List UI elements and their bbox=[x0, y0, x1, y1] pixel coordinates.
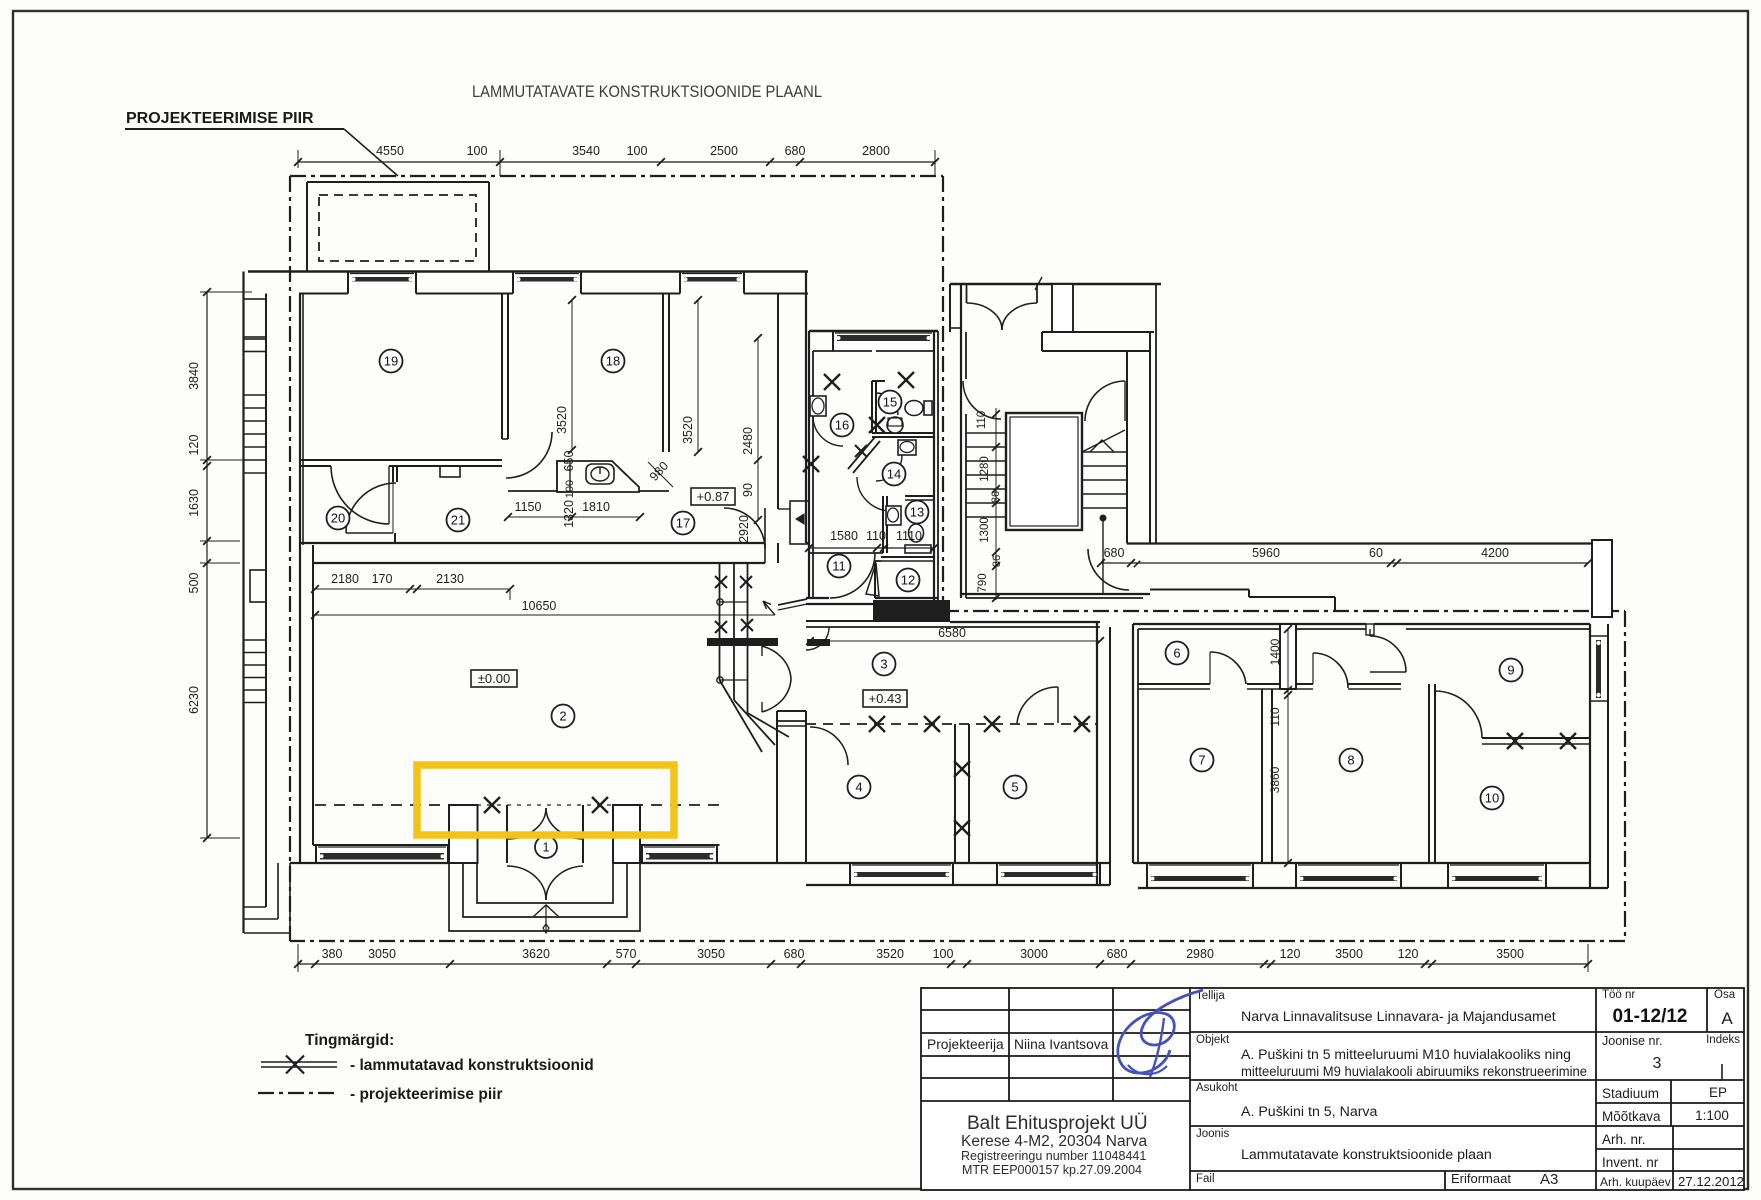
svg-text:- lammutatavad konstruktsiooni: - lammutatavad konstruktsioonid bbox=[350, 1057, 594, 1074]
svg-text:170: 170 bbox=[372, 572, 393, 586]
svg-text:Lammutatavate konstruktsioonid: Lammutatavate konstruktsioonide plaan bbox=[1241, 1147, 1492, 1163]
svg-text:380: 380 bbox=[322, 947, 343, 961]
svg-text:18: 18 bbox=[606, 354, 620, 369]
svg-text:+0.43: +0.43 bbox=[869, 691, 902, 706]
svg-text:10: 10 bbox=[1485, 791, 1499, 806]
svg-text:12: 12 bbox=[901, 573, 915, 588]
svg-text:1:100: 1:100 bbox=[1695, 1108, 1729, 1123]
svg-text:Indeks: Indeks bbox=[1706, 1034, 1740, 1046]
svg-text:9: 9 bbox=[1507, 663, 1514, 678]
svg-text:Tingmärgid:: Tingmärgid: bbox=[305, 1032, 394, 1049]
svg-text:2180: 2180 bbox=[331, 572, 359, 586]
svg-text:4200: 4200 bbox=[1481, 546, 1509, 560]
svg-text:2980: 2980 bbox=[1186, 947, 1214, 961]
svg-text:Mõõtkava: Mõõtkava bbox=[1602, 1109, 1661, 1124]
svg-text:60: 60 bbox=[1369, 546, 1383, 560]
svg-text:Registreeringu number 11048441: Registreeringu number 11048441 bbox=[961, 1149, 1146, 1163]
svg-text:3: 3 bbox=[880, 657, 887, 672]
svg-text:3500: 3500 bbox=[1496, 947, 1524, 961]
svg-text:650: 650 bbox=[562, 451, 576, 472]
svg-text:LAMMUTATAVATE KONSTRUKTSIOONID: LAMMUTATAVATE KONSTRUKTSIOONIDE PLAANL bbox=[472, 83, 822, 101]
svg-text:3860: 3860 bbox=[1268, 766, 1282, 793]
svg-text:90: 90 bbox=[741, 483, 755, 497]
svg-text:3: 3 bbox=[1653, 1055, 1662, 1072]
svg-text:3050: 3050 bbox=[368, 947, 396, 961]
svg-text:Osa: Osa bbox=[1714, 989, 1736, 1001]
svg-text:3500: 3500 bbox=[1335, 947, 1363, 961]
svg-text:2480: 2480 bbox=[741, 427, 755, 455]
svg-text:790: 790 bbox=[977, 573, 989, 592]
svg-text:MTR EEP000157 kp.27.09.2004: MTR EEP000157 kp.27.09.2004 bbox=[962, 1163, 1142, 1177]
svg-text:3000: 3000 bbox=[1020, 947, 1048, 961]
svg-text:1280: 1280 bbox=[979, 456, 991, 482]
svg-text:3520: 3520 bbox=[876, 947, 904, 961]
svg-text:2800: 2800 bbox=[862, 144, 890, 158]
svg-text:86: 86 bbox=[990, 491, 1002, 503]
svg-text:Arh. kuupäev: Arh. kuupäev bbox=[1600, 1175, 1671, 1189]
svg-text:A3: A3 bbox=[1540, 1171, 1558, 1188]
svg-text:21: 21 bbox=[451, 513, 465, 528]
svg-text:1150: 1150 bbox=[515, 500, 542, 514]
svg-text:7: 7 bbox=[1198, 753, 1205, 768]
svg-text:4: 4 bbox=[855, 780, 862, 795]
svg-text:110: 110 bbox=[1268, 707, 1282, 726]
svg-text:100: 100 bbox=[467, 144, 488, 158]
svg-text:+0.87: +0.87 bbox=[697, 489, 730, 504]
svg-text:100: 100 bbox=[627, 144, 648, 158]
svg-text:Objekt: Objekt bbox=[1196, 1034, 1230, 1046]
svg-text:2130: 2130 bbox=[436, 572, 464, 586]
svg-text:680: 680 bbox=[1107, 947, 1128, 961]
svg-text:1630: 1630 bbox=[187, 489, 201, 517]
svg-text:17: 17 bbox=[676, 516, 690, 531]
svg-text:4550: 4550 bbox=[376, 144, 404, 158]
svg-text:20: 20 bbox=[331, 511, 345, 526]
svg-text:6230: 6230 bbox=[187, 686, 201, 714]
svg-text:86: 86 bbox=[991, 555, 1003, 567]
svg-text:1810: 1810 bbox=[582, 500, 610, 514]
svg-text:A. Puškini tn 5 mitteeluruumi: A. Puškini tn 5 mitteeluruumi M10 huvial… bbox=[1241, 1046, 1571, 1062]
svg-text:13: 13 bbox=[910, 505, 924, 520]
svg-text:120: 120 bbox=[1398, 947, 1419, 961]
svg-text:3540: 3540 bbox=[572, 144, 600, 158]
svg-text:500: 500 bbox=[187, 573, 201, 594]
svg-text:3620: 3620 bbox=[522, 947, 550, 961]
svg-text:1400: 1400 bbox=[1268, 638, 1282, 665]
svg-text:110: 110 bbox=[976, 411, 988, 429]
svg-text:1320: 1320 bbox=[562, 500, 576, 528]
svg-text:11: 11 bbox=[832, 559, 846, 574]
svg-text:1300: 1300 bbox=[979, 517, 991, 543]
svg-text:01-12/12: 01-12/12 bbox=[1612, 1006, 1687, 1027]
svg-text:1580: 1580 bbox=[830, 529, 858, 543]
svg-text:Fail: Fail bbox=[1196, 1173, 1215, 1185]
svg-text:2920: 2920 bbox=[737, 515, 751, 543]
svg-text:27.12.2012: 27.12.2012 bbox=[1678, 1174, 1744, 1189]
svg-text:A. Puškini tn 5, Narva: A. Puškini tn 5, Narva bbox=[1241, 1104, 1378, 1120]
svg-text:680: 680 bbox=[784, 947, 805, 961]
svg-text:A: A bbox=[1721, 1009, 1733, 1028]
svg-text:Asukoht: Asukoht bbox=[1196, 1082, 1238, 1094]
svg-text:PROJEKTEERIMISE PIIR: PROJEKTEERIMISE PIIR bbox=[126, 110, 314, 127]
svg-text:6580: 6580 bbox=[938, 626, 966, 640]
svg-text:Eriformaat: Eriformaat bbox=[1451, 1171, 1511, 1186]
svg-text:EP: EP bbox=[1709, 1085, 1727, 1100]
svg-text:19: 19 bbox=[384, 354, 398, 369]
svg-text:14: 14 bbox=[887, 467, 901, 482]
svg-text:mitteeluruumi M9 huvialakooli: mitteeluruumi M9 huvialakooli abiruumiks… bbox=[1241, 1063, 1587, 1079]
svg-text:2: 2 bbox=[559, 709, 566, 724]
svg-text:Arh. nr.: Arh. nr. bbox=[1602, 1132, 1646, 1147]
svg-text:6: 6 bbox=[1173, 646, 1180, 661]
svg-text:±0.00: ±0.00 bbox=[478, 671, 510, 686]
svg-text:3050: 3050 bbox=[697, 947, 725, 961]
svg-text:Balt Ehitusprojekt UÜ: Balt Ehitusprojekt UÜ bbox=[967, 1113, 1148, 1134]
svg-text:Joonise nr.: Joonise nr. bbox=[1602, 1034, 1662, 1048]
svg-text:Niina Ivantsova: Niina Ivantsova bbox=[1014, 1037, 1109, 1052]
svg-text:Stadiuum: Stadiuum bbox=[1602, 1086, 1659, 1101]
svg-text:3840: 3840 bbox=[187, 362, 201, 390]
svg-text:Töö nr: Töö nr bbox=[1602, 989, 1635, 1001]
svg-text:5: 5 bbox=[1011, 780, 1018, 795]
svg-text:100: 100 bbox=[933, 947, 954, 961]
svg-text:2500: 2500 bbox=[710, 144, 738, 158]
svg-text:15: 15 bbox=[883, 395, 897, 410]
svg-text:Invent. nr: Invent. nr bbox=[1602, 1155, 1659, 1170]
svg-text:Kerese 4-M2, 20304 Narva: Kerese 4-M2, 20304 Narva bbox=[961, 1133, 1147, 1150]
svg-text:16: 16 bbox=[835, 418, 849, 433]
svg-text:100: 100 bbox=[564, 480, 576, 498]
svg-text:5960: 5960 bbox=[1252, 546, 1280, 560]
svg-text:- projekteerimise piir: - projekteerimise piir bbox=[350, 1086, 502, 1103]
svg-text:10650: 10650 bbox=[522, 599, 557, 613]
svg-text:110: 110 bbox=[866, 529, 886, 543]
svg-text:680: 680 bbox=[785, 144, 806, 158]
svg-text:120: 120 bbox=[187, 435, 201, 456]
svg-text:120: 120 bbox=[1280, 947, 1301, 961]
svg-text:1110: 1110 bbox=[896, 529, 922, 543]
svg-text:570: 570 bbox=[616, 947, 637, 961]
svg-text:Projekteerija: Projekteerija bbox=[927, 1037, 1004, 1052]
svg-text:Joonis: Joonis bbox=[1196, 1128, 1229, 1140]
svg-text:3520: 3520 bbox=[681, 416, 695, 444]
svg-text:Narva Linnavalitsuse Linnavara: Narva Linnavalitsuse Linnavara- ja Majan… bbox=[1241, 1009, 1556, 1025]
svg-text:8: 8 bbox=[1347, 753, 1354, 768]
svg-text:680: 680 bbox=[1104, 546, 1125, 560]
svg-text:3520: 3520 bbox=[555, 406, 569, 434]
svg-text:1: 1 bbox=[543, 841, 550, 855]
